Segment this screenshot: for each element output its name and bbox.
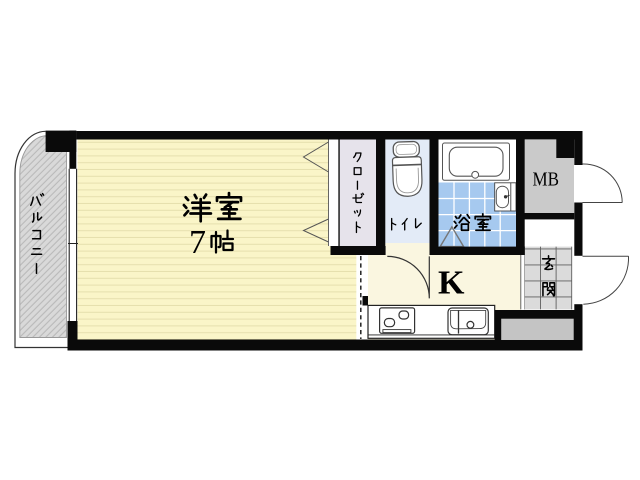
svg-text:MB: MB (533, 170, 560, 191)
svg-text:K: K (438, 265, 465, 302)
svg-text:7: 7 (189, 224, 206, 261)
